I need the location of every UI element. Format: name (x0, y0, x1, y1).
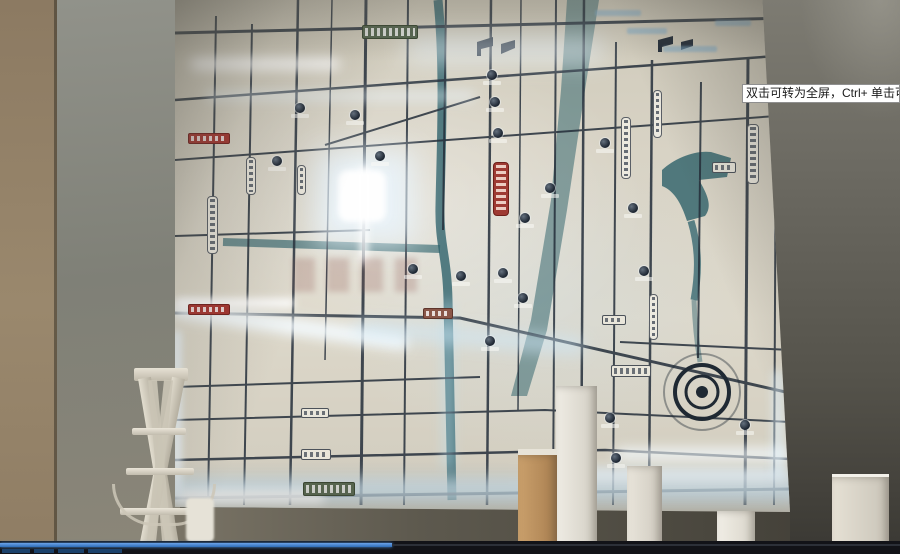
light-glow-strip (405, 36, 605, 62)
poi-marker-icon (520, 213, 530, 223)
road-sign-plate (611, 365, 651, 377)
clipped-text-fragment (2, 549, 30, 553)
poi-marker-icon (485, 336, 495, 346)
ladder-rung (126, 468, 194, 475)
road-sign-pill (621, 117, 631, 179)
clipped-text-fragment (34, 549, 54, 553)
poi-marker-icon (605, 413, 615, 423)
road-sign-pill (297, 165, 306, 195)
light-glow-strip (615, 448, 790, 460)
left-wall-tan-panel (0, 0, 57, 554)
road-sign-plate (188, 304, 230, 315)
tooltip-text: 双击可转为全屏，Ctrl+ 单击可转为 (746, 85, 900, 102)
poi-marker-icon (375, 151, 385, 161)
poi-marker-icon (490, 97, 500, 107)
fullscreen-tooltip: 双击可转为全屏，Ctrl+ 单击可转为 (742, 84, 900, 103)
foreground-white-column (556, 386, 597, 554)
roundabout-icon (664, 354, 740, 430)
road-sign-plate (301, 449, 331, 460)
map-label-strip (663, 46, 717, 52)
poi-marker-icon (518, 293, 528, 303)
ladder-rung (132, 428, 186, 435)
road-sign-plate (301, 408, 329, 418)
road-sign-pill (649, 294, 658, 340)
poi-marker-icon (628, 203, 638, 213)
road-sign-pill (246, 157, 256, 195)
poi-marker-icon (272, 156, 282, 166)
poi-marker-icon (350, 110, 360, 120)
floor-strip (175, 508, 790, 544)
map-label-strip (715, 20, 751, 26)
poi-marker-icon (295, 103, 305, 113)
river-glow (443, 300, 453, 470)
ladder-bucket (186, 498, 214, 542)
poi-marker-icon (600, 138, 610, 148)
video-frame[interactable]: 双击可转为全屏，Ctrl+ 单击可转为 (0, 0, 900, 554)
illuminated-map-board (175, 0, 790, 512)
progress-track[interactable] (392, 544, 900, 546)
poi-marker-icon (493, 128, 503, 138)
poi-marker-icon (545, 183, 555, 193)
road-sign-plate (303, 482, 355, 496)
foreground-cardboard-column (518, 449, 557, 554)
video-progress-bar[interactable] (0, 541, 900, 554)
poi-marker-icon (408, 264, 418, 274)
poi-marker-icon (487, 70, 497, 80)
light-glow-vertical (360, 165, 368, 265)
road-sign-plate (362, 25, 418, 39)
light-glow-strip (205, 92, 475, 100)
road-sign-pill (653, 90, 662, 138)
progress-fill[interactable] (0, 543, 392, 547)
edge-glow (773, 370, 783, 480)
poi-marker-icon (639, 266, 649, 276)
road-sign-pill (747, 124, 759, 184)
stepladder (98, 366, 234, 554)
river-shapes (223, 0, 731, 500)
poi-marker-icon (456, 271, 466, 281)
road-sign-pill (207, 196, 218, 254)
map-label-strip (595, 10, 641, 16)
project-banner (493, 162, 509, 216)
road-sign-plate (423, 308, 453, 319)
road-sign-plate (602, 315, 626, 325)
clipped-text-fragment (58, 549, 84, 553)
map-label-strip (627, 28, 667, 34)
road-sign-plate (712, 162, 736, 173)
clipped-text-fragment (88, 549, 122, 553)
poi-marker-icon (611, 453, 621, 463)
map-graphic (175, 0, 790, 512)
poi-marker-icon (498, 268, 508, 278)
bottom-glow-strip (575, 468, 790, 484)
road-sign-plate (188, 133, 230, 144)
light-glow-strip (190, 58, 340, 70)
poi-marker-icon (740, 420, 750, 430)
